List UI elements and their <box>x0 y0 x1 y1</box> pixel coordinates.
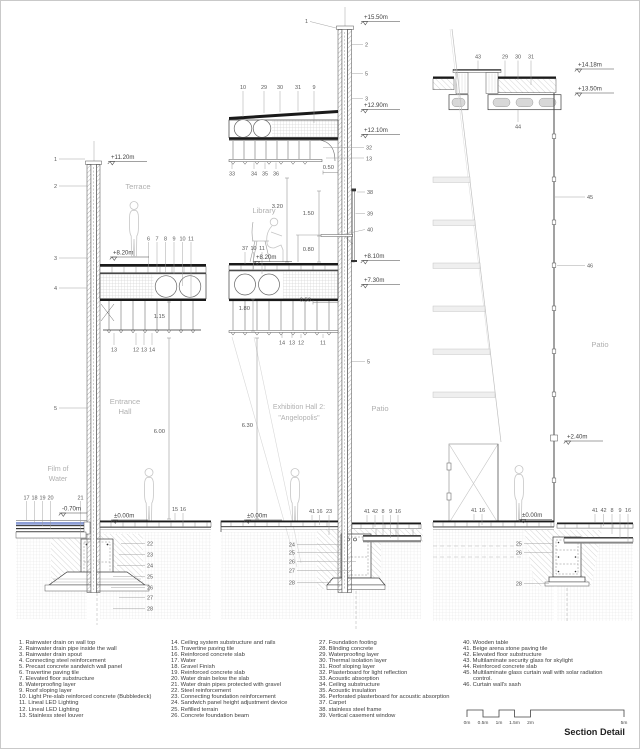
callout-label: 41 <box>592 508 598 514</box>
section-right: 43 29 30 31 44 +14.18m +13.50m 45 46 <box>433 29 633 623</box>
callout-labels: 45 46 <box>555 195 593 270</box>
callout-label: 41 <box>471 508 477 514</box>
callout-labels: 13 12 13 14 <box>111 333 155 354</box>
water-film-detail <box>16 521 90 539</box>
callout-label: 42 <box>600 508 606 514</box>
callout-label: 16 <box>180 507 186 513</box>
elevation-marker: +8.10m <box>361 253 400 264</box>
callout-label: 5 <box>365 72 368 78</box>
legend-item: 26. Concrete foundation beam <box>171 713 317 719</box>
callout-label: 16 <box>625 508 631 514</box>
dim-label: 6.30 <box>242 423 253 429</box>
callout-label: 15 <box>172 507 178 513</box>
elevation-marker: +13.50m <box>575 86 614 97</box>
elevation-label: +12.10m <box>364 127 388 134</box>
dim-label: 0.80 <box>303 247 314 253</box>
callout-label: 25 <box>289 551 295 557</box>
callout-label: 19 <box>39 496 45 502</box>
elevation-label: ±0.00m <box>114 513 134 520</box>
dim-label: 1.80 <box>239 306 250 312</box>
callout-label: 14 <box>149 348 155 354</box>
callout-label: 11 <box>188 237 194 243</box>
callout-label: 11 <box>320 341 326 347</box>
sandwich-wall-panel <box>337 7 354 593</box>
dimension: 6.30 <box>242 338 259 519</box>
callout-label: 35 <box>262 172 268 178</box>
callout-label: 28 <box>516 582 522 588</box>
elevation-label: +2.40m <box>567 434 588 441</box>
callout-label: 25 <box>516 542 522 548</box>
person-figure <box>130 202 139 257</box>
elevation-marker: +15.50m <box>361 14 400 25</box>
library-floor-slab <box>229 263 338 301</box>
callout-label: 42 <box>372 509 378 515</box>
callout-label: 9 <box>172 237 175 243</box>
callout-label: 1 <box>305 19 308 25</box>
room-label: "Angelopolis" <box>278 415 320 422</box>
elevation-label: ±0.00m <box>247 513 267 520</box>
callout-label: 20 <box>47 496 53 502</box>
callout-label: 40 <box>367 228 373 234</box>
callout-label: 39 <box>367 212 373 218</box>
dimension: 1.80 0.50 <box>239 298 338 332</box>
callout-label: 33 <box>229 172 235 178</box>
callout-label: 10 <box>179 237 185 243</box>
callout-labels: 1 2 3 4 5 <box>54 157 87 412</box>
legend-item: 46. Curtain wall's sash <box>463 682 613 688</box>
room-label: Film of <box>48 466 69 473</box>
patio-ground <box>433 521 554 530</box>
callout-label: 41 <box>364 509 370 515</box>
elevation-mar​ker: +7.30m <box>361 277 400 288</box>
callout-label: 4 <box>54 286 57 292</box>
callout-label: 9 <box>618 508 621 514</box>
person-figure <box>291 469 300 524</box>
curtain-wall-sash <box>551 435 558 441</box>
callout-label: 9 <box>389 509 392 515</box>
scale-label: 0.5m <box>478 720 489 726</box>
elevation-label: ±0.00m <box>522 512 542 519</box>
elevation-marker: +8.20m <box>110 250 149 261</box>
water-layer <box>16 522 84 525</box>
elevation-label: +12.90m <box>364 102 388 109</box>
roof-slab <box>229 110 338 141</box>
callout-label: 34 <box>251 172 257 178</box>
dimension: 1.15 6.00 <box>154 302 171 519</box>
room-label: Patio <box>371 404 388 413</box>
scale-label: 1.5m <box>509 720 520 726</box>
room-label: Patio <box>591 340 608 349</box>
drawing-title: Section Detail <box>564 727 625 737</box>
callout-label: 13 <box>141 348 147 354</box>
legend-item: 13. Stainless steel louver <box>19 713 169 719</box>
callout-label: 23 <box>147 553 153 559</box>
suspended-ceiling <box>229 140 335 164</box>
legend-column-1: 1. Rainwater drain on wall top 2. Rainwa… <box>19 640 169 719</box>
callout-label: 26 <box>516 551 522 557</box>
callout-label: 46 <box>587 264 593 270</box>
callout-label: 10 <box>250 246 256 252</box>
room-label: Exhibition Hall 2: <box>273 404 325 411</box>
scale-label: 1m <box>496 720 503 726</box>
elevation-marker: +12.10m <box>361 127 400 138</box>
callout-label: 36 <box>273 172 279 178</box>
callout-label: 8 <box>381 509 384 515</box>
dim-label: 0.50 <box>323 165 334 171</box>
section-middle: 10 29 30 31 9 1 2 5 3 32 13 +12.90m +12.… <box>221 7 423 629</box>
callout-label: 38 <box>367 190 373 196</box>
callout-label: 9 <box>312 85 315 91</box>
dim-label: 0.50 <box>300 298 311 304</box>
legend-item: 39. Vertical casement window <box>319 713 461 719</box>
elevation-label: +8.10m <box>364 253 385 260</box>
callout-label: 27 <box>289 569 295 575</box>
legend-column-3: 27. Foundation footing 28. Blinding conc… <box>319 640 461 719</box>
elevation-label: +8.20m <box>256 254 277 261</box>
callout-label: 26 <box>289 560 295 566</box>
callout-label: 30 <box>277 85 283 91</box>
section-detail-sheet: 1 2 3 4 5 6 7 8 9 10 11 13 12 13 14 +11.… <box>0 0 640 749</box>
callout-label: 44 <box>515 125 521 131</box>
callout-label: 27 <box>147 596 153 602</box>
elevation-label: +11.20m <box>111 154 134 161</box>
section-left: 1 2 3 4 5 6 7 8 9 10 11 13 12 13 14 +11.… <box>16 141 211 625</box>
callout-label: 32 <box>366 146 372 152</box>
callout-label: 12 <box>133 348 139 354</box>
elevation-marker: +14.18m <box>575 62 614 73</box>
callout-label: 23 <box>326 509 332 515</box>
room-label: Entrance <box>110 397 140 406</box>
callout-label: 26 <box>147 586 153 592</box>
callout-label: 13 <box>289 341 295 347</box>
dim-label: 1.15 <box>154 314 165 320</box>
legend-item: 45. Multilaminate glass curtain wall wit… <box>463 670 613 682</box>
scale-label: 0m <box>464 720 471 726</box>
dim-label: 6.00 <box>154 429 165 435</box>
callout-labels: 10 29 30 31 9 1 2 5 3 32 13 <box>240 19 372 163</box>
terrace-floor-slab <box>100 264 206 301</box>
curtain-wall <box>551 93 558 522</box>
callout-label: 30 <box>515 55 521 61</box>
callout-label: 16 <box>395 509 401 515</box>
elevation-label: +14.18m <box>578 62 602 69</box>
callout-label: 6 <box>147 237 150 243</box>
callout-label: 14 <box>279 341 285 347</box>
elevation-label: +15.50m <box>364 14 388 21</box>
callout-label: 29 <box>261 85 267 91</box>
callout-label: 22 <box>147 542 153 548</box>
callout-label: 3 <box>54 256 57 262</box>
skylight-assembly <box>433 70 561 110</box>
scale-bar: 0m 0.5m 1m 1.5m 2m 5m <box>459 699 634 729</box>
elevation-label: +8.20m <box>113 250 134 257</box>
callout-label: 2 <box>54 184 57 190</box>
room-label: Water <box>49 476 68 483</box>
callout-label: 43 <box>475 55 481 61</box>
callout-label: 17 <box>23 496 29 502</box>
callout-label: 16 <box>316 509 322 515</box>
callout-label: 7 <box>155 237 158 243</box>
callout-label: 5 <box>54 406 57 412</box>
callout-label: 13 <box>111 348 117 354</box>
scale-bar-line <box>467 710 624 717</box>
elevation-label: +13.50m <box>578 86 602 93</box>
callout-label: 12 <box>298 341 304 347</box>
callout-label: 11 <box>259 246 265 252</box>
callout-label: 41 <box>309 509 315 515</box>
callout-label: 28 <box>289 581 295 587</box>
callout-label: 37 <box>242 246 248 252</box>
callout-labels: 14 13 12 11 5 <box>279 334 370 366</box>
elevation-marker: +11.20m <box>108 154 147 165</box>
callout-label: 13 <box>366 157 372 163</box>
callout-label: 10 <box>240 85 246 91</box>
elevation-marker: +2.40m <box>564 434 603 445</box>
callout-label: 24 <box>147 564 153 570</box>
callout-label: 8 <box>164 237 167 243</box>
callout-label: 28 <box>147 607 153 613</box>
scale-label: 5m <box>621 720 628 726</box>
callout-label: 29 <box>502 55 508 61</box>
casement-window <box>351 189 357 263</box>
room-label: Hall <box>118 407 131 416</box>
callout-label: 24 <box>289 543 295 549</box>
section-detail-drawing: 1 2 3 4 5 6 7 8 9 10 11 13 12 13 14 +11.… <box>1 1 640 637</box>
room-label: Library <box>252 206 275 215</box>
callout-label: 25 <box>147 575 153 581</box>
elevation-marker: -0.70m <box>59 506 87 517</box>
legend-column-4: 40. Wooden table 41. Beige arena stone p… <box>463 640 613 688</box>
callout-label: 45 <box>587 195 593 201</box>
callout-label: 31 <box>528 55 534 61</box>
callout-label: 21 <box>77 496 83 502</box>
callout-label: 8 <box>610 508 613 514</box>
scale-label: 2m <box>527 720 534 726</box>
suspended-ceiling <box>101 301 201 333</box>
callout-label: 16 <box>479 508 485 514</box>
elevation-label: +7.30m <box>364 277 385 284</box>
person-figure <box>145 469 154 524</box>
callout-label: 1 <box>54 157 57 163</box>
dim-label: 1.50 <box>303 211 314 217</box>
legend-column-2: 14. Ceiling system substructure and rail… <box>171 640 317 719</box>
callout-label: 31 <box>295 85 301 91</box>
callout-label: 18 <box>31 496 37 502</box>
room-label: Terrace <box>125 182 150 191</box>
elevation-marker: +12.90m <box>361 102 400 113</box>
callout-label: 5 <box>367 360 370 366</box>
callout-labels: 33 34 35 36 <box>229 163 279 178</box>
callout-label: 2 <box>365 43 368 49</box>
elevation-label: -0.70m <box>62 506 81 513</box>
